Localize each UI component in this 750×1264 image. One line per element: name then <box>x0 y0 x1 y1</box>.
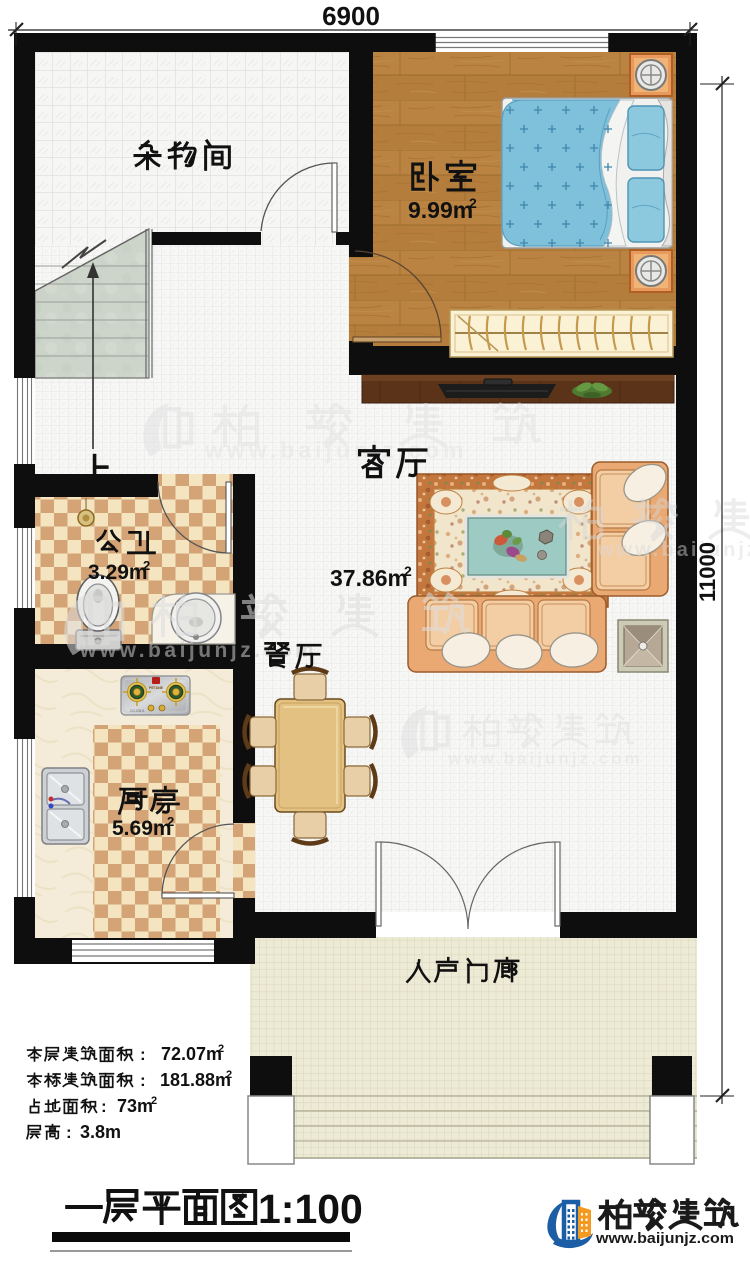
svg-text:6900: 6900 <box>322 1 380 31</box>
svg-text:181.88m: 181.88m <box>160 1070 231 1090</box>
svg-text::: : <box>66 1123 72 1142</box>
svg-text:3.8m: 3.8m <box>80 1122 121 1142</box>
svg-text::: : <box>101 1097 107 1116</box>
svg-text:37.86m: 37.86m <box>330 565 408 591</box>
svg-text:www.baijunjz.com: www.baijunjz.com <box>204 437 468 463</box>
svg-text::: : <box>140 1071 146 1090</box>
svg-text::: : <box>140 1045 146 1064</box>
svg-text:www.baijunjz.com: www.baijunjz.com <box>595 1231 734 1247</box>
svg-text:2: 2 <box>469 195 477 211</box>
svg-text:5.69m: 5.69m <box>112 817 172 840</box>
svg-text:www.baijunjz.com: www.baijunjz.com <box>447 749 643 768</box>
svg-text:72.07m: 72.07m <box>161 1044 222 1064</box>
svg-text:2: 2 <box>226 1069 232 1081</box>
svg-text:2: 2 <box>167 814 174 829</box>
svg-text:1:100: 1:100 <box>258 1186 363 1232</box>
svg-text:2: 2 <box>143 558 150 573</box>
svg-text:PETANE: PETANE <box>149 686 164 690</box>
svg-text:3.29m: 3.29m <box>88 561 148 584</box>
svg-text:www.baijunjz.com: www.baijunjz.com <box>597 539 750 561</box>
svg-text:2: 2 <box>151 1095 157 1107</box>
svg-text:73m: 73m <box>117 1096 153 1116</box>
svg-text:2: 2 <box>218 1043 224 1055</box>
svg-text:9.99m: 9.99m <box>408 197 473 223</box>
svg-text:2: 2 <box>404 563 412 579</box>
svg-text:11000: 11000 <box>695 542 720 602</box>
svg-text:CG-208-B: CG-208-B <box>130 709 144 713</box>
